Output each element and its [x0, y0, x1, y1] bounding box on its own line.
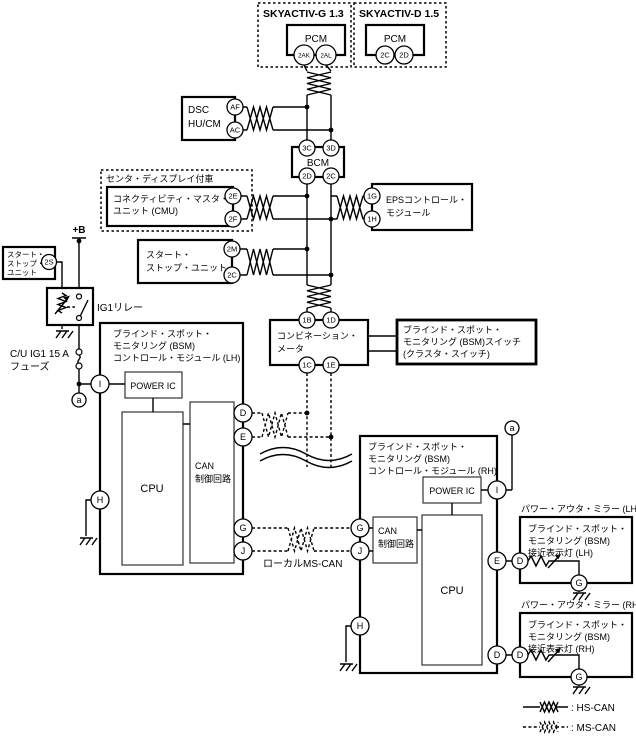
pin-g-mirror-lh: G: [571, 575, 587, 591]
svg-text:G: G: [575, 672, 582, 682]
lh-can-label-2: 制御回路: [195, 473, 231, 484]
pin-1g: 1G: [364, 188, 380, 204]
pin-2e: 2E: [225, 188, 241, 204]
pin-ac: AC: [227, 122, 243, 138]
ig1-fuse: C/U IG1 15 A フューズ: [10, 349, 82, 373]
fuse-label-2: フューズ: [10, 360, 50, 373]
pin-1c: 1C: [299, 357, 315, 373]
svg-text:AC: AC: [230, 126, 241, 135]
eps-module: EPSコントロール・ モジュール 1G 1H: [364, 184, 472, 230]
svg-text:2C: 2C: [227, 271, 237, 280]
ground-mirror-rh: [573, 687, 590, 694]
pin-i-rh: I: [488, 481, 506, 499]
rh-can-label-1: CAN: [378, 526, 397, 536]
twisted-pair-dsc: [247, 107, 273, 130]
relay-label: IG1リレー: [97, 303, 143, 314]
bsm-switch: ブラインド・スポット・ モニタリング (BSM)スイッチ (クラスタ・スイッチ): [368, 320, 536, 364]
legend-hs-can-label: : HS-CAN: [571, 703, 615, 714]
pin-af: AF: [227, 99, 243, 115]
bsm-switch-label-1: ブラインド・スポット・: [403, 324, 502, 335]
pin-2d-pcm: 2D: [395, 46, 413, 64]
pin-1e: 1E: [323, 357, 339, 373]
bsm-module-lh: ブラインド・スポット・ モニタリング (BSM) コントロール・モジュール (L…: [80, 323, 252, 574]
cmu-label-1: コネクティビティ・マスタ・: [113, 194, 229, 204]
svg-text:E: E: [494, 556, 500, 566]
fuse-label-1: C/U IG1 15 A: [10, 349, 69, 360]
meter-label-1: コンビネーション・: [277, 331, 358, 341]
svg-text:J: J: [358, 546, 363, 556]
svg-text:1D: 1D: [326, 316, 336, 325]
bsm-switch-label-2: モニタリング (BSM)スイッチ: [403, 336, 521, 347]
pin-1b: 1B: [299, 312, 315, 328]
break-wave: [260, 448, 352, 468]
twisted-pair-meter: [307, 285, 331, 308]
mirror-rh-label-1: ブラインド・スポット・: [528, 619, 627, 630]
pin-2al: 2AL: [316, 45, 336, 65]
pin-h-lh: H: [91, 491, 109, 509]
svg-text:H: H: [97, 495, 104, 505]
bsm-lh-label-3: コントロール・モジュール (LH): [113, 353, 240, 363]
bsm-lh-label-1: ブラインド・スポット・: [113, 328, 212, 339]
start-stop-label-1: スタート・: [146, 250, 191, 260]
combination-meter: コンビネーション・ メータ 1B 1D 1C 1E: [270, 312, 368, 373]
svg-text:AF: AF: [230, 103, 240, 112]
cmu-label-2: ユニット (CMU): [113, 206, 178, 216]
svg-text:I: I: [496, 485, 499, 495]
mirror-rh-title: パワー・アウタ・ミラー (RH): [521, 600, 636, 610]
ms-can-wiring: ローカルMS-CAN: [252, 373, 352, 570]
twisted-pair-pcm: [307, 72, 331, 95]
pin-2f: 2F: [225, 211, 241, 227]
ground-lh: [80, 538, 97, 545]
svg-text:2F: 2F: [229, 215, 238, 224]
pin-d-mirror-rh: D: [512, 647, 528, 663]
svg-text:D: D: [494, 650, 501, 660]
svg-text:2C: 2C: [326, 172, 336, 181]
eps-label-1: EPSコントロール・: [386, 195, 467, 205]
pcm-d-label: PCM: [384, 34, 406, 45]
svg-text:1H: 1H: [367, 215, 377, 224]
pin-d-lh: D: [234, 404, 252, 422]
wiring-diagram: ローカルMS-CAN SKYACTIV-G 1.3 PCM 2AK 2AL SK…: [0, 0, 636, 744]
lh-cpu-label: CPU: [140, 483, 163, 495]
pin-2m: 2M: [224, 241, 240, 257]
pin-e-lh: E: [234, 428, 252, 446]
svg-text:2E: 2E: [228, 192, 237, 201]
dsc-label-1: DSC: [188, 105, 209, 116]
meter-label-2: メータ: [277, 344, 304, 354]
pin-2c-pcm: 2C: [376, 46, 394, 64]
lh-de-wires: [252, 413, 331, 437]
pin-3d: 3D: [323, 140, 339, 156]
bcm-label: BCM: [307, 158, 329, 169]
cmu: センタ・ディスプレイ付車 コネクティビティ・マスタ・ ユニット (CMU) 2E…: [101, 170, 252, 231]
relay-contact-top: [77, 294, 82, 299]
ms-can-vertical: [307, 373, 331, 467]
mirror-rh: パワー・アウタ・ミラー (RH) ブラインド・スポット・ モニタリング (BSM…: [506, 600, 636, 694]
svg-text:H: H: [357, 621, 364, 631]
pcm-skyactiv-d: SKYACTIV-D 1.5 PCM 2C 2D: [354, 3, 446, 67]
center-display-note: センタ・ディスプレイ付車: [106, 173, 213, 184]
lh-power-ic-label: POWER IC: [130, 381, 176, 391]
pin-g-mirror-rh: G: [571, 669, 587, 685]
bcm: BCM 3C 3D 2D 2C: [292, 140, 344, 184]
pin-g-rh: G: [351, 519, 369, 537]
mirror-lh-label-1: ブラインド・スポット・: [528, 523, 627, 534]
ss-small-label-3: ユニット: [7, 268, 37, 277]
hs-can-bus-wiring: [240, 65, 364, 312]
dsc-label-2: HU/CM: [188, 119, 221, 130]
twisted-pair-local-ms-can: [288, 528, 314, 551]
svg-text:2M: 2M: [227, 245, 237, 254]
svg-text:G: G: [356, 523, 363, 533]
pin-g-lh: G: [234, 519, 252, 537]
ss-small-label-2: ストップ・: [7, 259, 45, 268]
dsc-hucm: DSC HU/CM AF AC: [182, 97, 243, 140]
pin-d-mirror-lh: D: [512, 553, 528, 569]
svg-text:J: J: [241, 546, 246, 556]
pin-d-rh: D: [488, 646, 506, 664]
svg-text:G: G: [239, 523, 246, 533]
skyactiv-g-label: SKYACTIV-G 1.3: [263, 8, 344, 20]
svg-text:1E: 1E: [326, 361, 335, 370]
pin-e-rh: E: [488, 552, 506, 570]
legend-ms-can-label: : MS-CAN: [571, 723, 616, 734]
bsm-module-rh: ブラインド・スポット・ モニタリング (BSM) コントロール・モジュール (R…: [340, 421, 519, 673]
svg-text:2AK: 2AK: [298, 53, 311, 60]
pin-1h: 1H: [364, 211, 380, 227]
pin-a-lh: a: [72, 393, 86, 407]
meter-switch-wires: [368, 336, 397, 351]
bsm-rh-label-2: モニタリング (BSM): [368, 453, 450, 464]
svg-text:2C: 2C: [380, 51, 390, 60]
svg-text:2AL: 2AL: [320, 53, 332, 60]
meter-box: [270, 320, 368, 365]
relay-contact-bottom: [77, 316, 82, 321]
svg-text:1G: 1G: [367, 192, 377, 201]
svg-text:3D: 3D: [326, 144, 336, 153]
mirror-rh-label-2: モニタリング (BSM): [528, 631, 610, 642]
bsm-rh-label-1: ブラインド・スポット・: [368, 441, 467, 452]
bsm-switch-label-3: (クラスタ・スイッチ): [403, 349, 490, 359]
pin-a-rh: a: [505, 421, 519, 435]
mirror-rh-label-3: 接近表示灯 (RH): [528, 643, 595, 654]
pin-2d-bcm: 2D: [299, 168, 315, 184]
pin-2c-ss: 2C: [224, 267, 240, 283]
mirror-lh-label-3: 接近表示灯 (LH): [528, 547, 593, 558]
wiring-diagram-svg: ローカルMS-CAN SKYACTIV-G 1.3 PCM 2AK 2AL SK…: [0, 0, 636, 744]
pcm-skyactiv-g: SKYACTIV-G 1.3 PCM 2AK 2AL: [258, 3, 351, 67]
legend-hs-can-symbol: [523, 702, 568, 712]
mirror-lh-title: パワー・アウタ・ミラー (LH): [521, 504, 636, 514]
rh-cpu-label: CPU: [440, 585, 463, 597]
mirror-lh: パワー・アウタ・ミラー (LH) ブラインド・スポット・ モニタリング (BSM…: [506, 504, 636, 600]
svg-text:D: D: [517, 650, 524, 660]
twisted-pair-cmu: [247, 196, 273, 219]
lh-can-label-1: CAN: [195, 461, 214, 471]
pin-h-rh: H: [351, 617, 369, 635]
rh-power-ic-label: POWER IC: [429, 486, 475, 496]
local-ms-can-label: ローカルMS-CAN: [263, 558, 342, 570]
twisted-pair-start-stop: [247, 249, 273, 275]
pin-j-rh: J: [351, 542, 369, 560]
legend: : HS-CAN : MS-CAN: [523, 702, 616, 734]
start-stop-unit: スタート・ ストップ・ユニット 2M 2C: [138, 240, 240, 283]
eps-box: [372, 184, 472, 230]
ground-rh: [340, 664, 357, 671]
legend-ms-can-symbol: [523, 722, 568, 732]
svg-text:I: I: [99, 379, 102, 389]
bsm-rh-label-3: コントロール・モジュール (RH): [368, 466, 497, 476]
pin-i-lh: I: [91, 375, 109, 393]
start-stop-wires: [240, 249, 331, 275]
ground-mirror-lh: [573, 593, 590, 600]
svg-text:1C: 1C: [302, 361, 312, 370]
twisted-pair-lh-de: [262, 413, 288, 437]
pin-j-lh: J: [234, 542, 252, 560]
mirror-lh-label-2: モニタリング (BSM): [528, 535, 610, 546]
bsm-lh-label-2: モニタリング (BSM): [113, 340, 195, 351]
start-stop-label-2: ストップ・ユニット: [146, 263, 227, 273]
svg-text:D: D: [240, 408, 247, 418]
eps-label-2: モジュール: [386, 208, 430, 218]
svg-text:a: a: [76, 395, 81, 405]
svg-text:D: D: [517, 556, 524, 566]
pin-2c-bcm: 2C: [323, 168, 339, 184]
pin-2ak: 2AK: [294, 45, 314, 65]
svg-text:1B: 1B: [302, 316, 311, 325]
pcm-g-label: PCM: [305, 34, 327, 45]
svg-text:a: a: [509, 423, 514, 433]
svg-text:2S: 2S: [44, 258, 53, 267]
svg-text:G: G: [575, 578, 582, 588]
svg-text:2D: 2D: [399, 51, 409, 60]
twisted-pair-eps: [337, 196, 363, 219]
svg-text:2D: 2D: [302, 172, 312, 181]
skyactiv-d-label: SKYACTIV-D 1.5: [359, 8, 439, 20]
ground-relay: [56, 331, 73, 338]
svg-text:3C: 3C: [302, 144, 312, 153]
ss-small-label-1: スタート・: [7, 250, 45, 259]
pin-1d: 1D: [323, 312, 339, 328]
pin-3c: 3C: [299, 140, 315, 156]
pin-2s: 2S: [42, 255, 57, 270]
rh-can-label-2: 制御回路: [378, 538, 414, 549]
lh-ground-wire: [86, 500, 91, 536]
rh-ground-wire: [346, 626, 351, 662]
ig1-relay: IG1リレー: [47, 288, 143, 325]
start-stop-box: [138, 240, 232, 283]
svg-text:E: E: [240, 432, 246, 442]
plus-b-label: +B: [72, 225, 85, 236]
